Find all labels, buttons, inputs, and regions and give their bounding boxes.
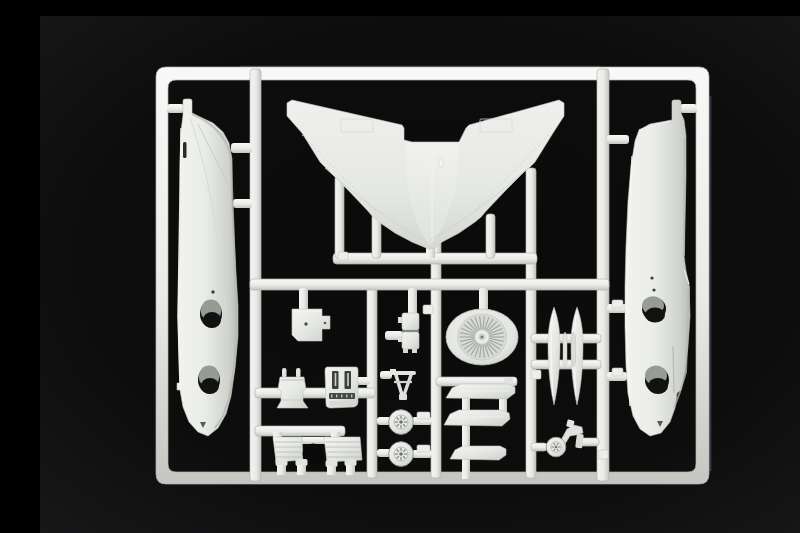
gate-right-fuselage-1 (607, 135, 629, 144)
gate-equipment-box (408, 288, 417, 315)
runner-tag (423, 305, 433, 314)
gate-right-fuselage-top (680, 104, 697, 113)
engine-fan (446, 309, 518, 365)
main-wheel-2 (389, 442, 414, 467)
gate-left-fuselage-1 (231, 143, 252, 153)
fuselage-left-dot (211, 290, 214, 293)
fuselage-right-dot (652, 288, 655, 291)
airbrake-actuator (326, 460, 338, 475)
fuselage-half-left (177, 99, 238, 436)
runner-d (526, 168, 536, 478)
gate-left-fuselage-2 (233, 199, 252, 208)
gear-bar-left (531, 443, 547, 451)
runner-tag (417, 412, 430, 419)
cockpit-tub-hole (324, 322, 327, 325)
runner-tag (338, 252, 348, 260)
runner-tag (531, 370, 541, 379)
runner-tag (417, 445, 430, 452)
stabilizer-c (450, 446, 506, 460)
sprue-svg (40, 16, 800, 533)
fuselage-right-dot (650, 276, 653, 279)
main-wheel-1 (389, 410, 414, 435)
wing-post-4 (486, 214, 495, 258)
airbrake-plate-right (324, 437, 362, 462)
fuselage-left-slit (183, 142, 187, 158)
runner-e (597, 69, 609, 481)
runner-a (250, 69, 261, 481)
instrument-panel (325, 367, 358, 408)
sprue-photo (40, 16, 800, 533)
nose-wheel (546, 437, 566, 457)
stabilizer-b (444, 410, 510, 426)
gate-fan-top (479, 288, 488, 312)
post-stab-bc (462, 424, 470, 448)
cockpit-tub-hole (304, 322, 307, 325)
airbrake-actuator (345, 459, 357, 475)
tank-fin (572, 332, 576, 367)
stabilizer-a (446, 384, 515, 399)
runner-tag (598, 450, 608, 459)
airbrake-plate-left (273, 437, 303, 462)
wing-pin-detail (439, 159, 444, 168)
runner-tag (612, 368, 623, 376)
gate-left-fuselage-top (167, 104, 184, 113)
post-stab-bottom (462, 459, 470, 479)
airbrake-actuator (276, 459, 288, 475)
wing-post-1 (335, 176, 344, 258)
fringe-right (709, 96, 712, 471)
gate-cockpit-tub (299, 288, 308, 311)
runner-tag (612, 300, 623, 308)
runner-c (431, 240, 441, 478)
airbrake-actuator (296, 459, 308, 475)
tank-fin (563, 332, 567, 367)
fuselage-half-right (625, 100, 690, 436)
